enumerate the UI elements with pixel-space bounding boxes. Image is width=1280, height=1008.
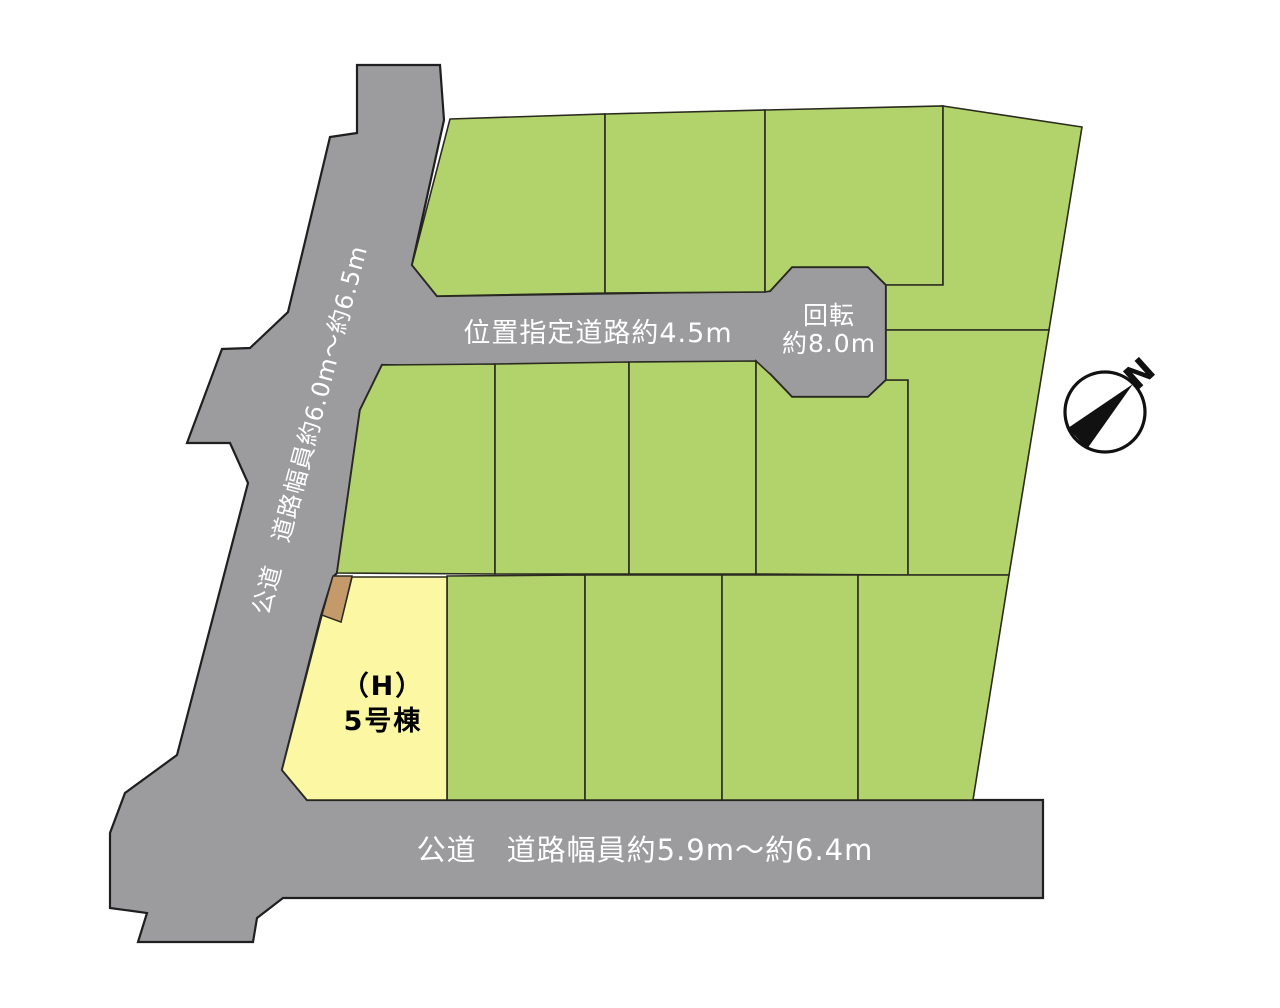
plot-bottom-1: [447, 575, 585, 800]
turnaround-label-line1: 回転: [803, 301, 855, 330]
plot-mid-3: [629, 361, 756, 574]
highlight-plot-label-line1: （H）: [342, 671, 425, 702]
compass-north-label: N: [1116, 350, 1163, 397]
site-plan-canvas: 公道 道路幅員約6.0m〜約6.5m 位置指定道路約4.5m 回転 約8.0m …: [0, 0, 1280, 1008]
turnaround-label-line2: 約8.0m: [782, 329, 876, 358]
compass: N: [1065, 350, 1163, 452]
plot-bottom-2: [585, 575, 722, 800]
plot-top-1: [412, 114, 605, 296]
lot-map-svg: 公道 道路幅員約6.0m〜約6.5m 位置指定道路約4.5m 回転 約8.0m …: [0, 0, 1280, 1008]
designated-road-label: 位置指定道路約4.5m: [463, 318, 732, 349]
plot-mid-5: [886, 330, 1049, 575]
plot-top-2: [605, 110, 765, 293]
plot-bottom-4: [858, 575, 1009, 800]
plot-bottom-3: [722, 575, 858, 800]
plot-top-3: [765, 106, 943, 292]
bottom-road-label: 公道 道路幅員約5.9m〜約6.4m: [417, 833, 874, 867]
plot-mid-2: [495, 362, 629, 574]
highlight-plot-label-line2: 5号棟: [344, 706, 423, 737]
